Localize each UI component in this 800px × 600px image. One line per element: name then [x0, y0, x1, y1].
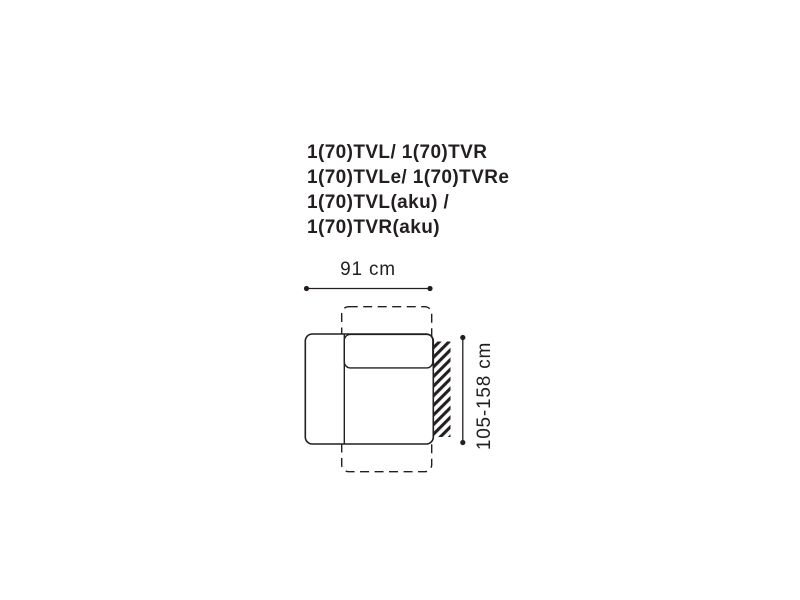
- width-dimension-endpoint-left: [304, 286, 309, 291]
- wall-hatch: [433, 342, 451, 438]
- sofa-top-view-diagram: [0, 0, 800, 600]
- width-dimension-endpoint-right: [427, 286, 432, 291]
- page: 1(70)TVL/ 1(70)TVR 1(70)TVLe/ 1(70)TVRe …: [0, 0, 800, 600]
- depth-dimension-endpoint-top: [460, 335, 465, 340]
- backrest-cushion-outline: [344, 334, 433, 368]
- depth-dimension-endpoint-bottom: [460, 440, 465, 445]
